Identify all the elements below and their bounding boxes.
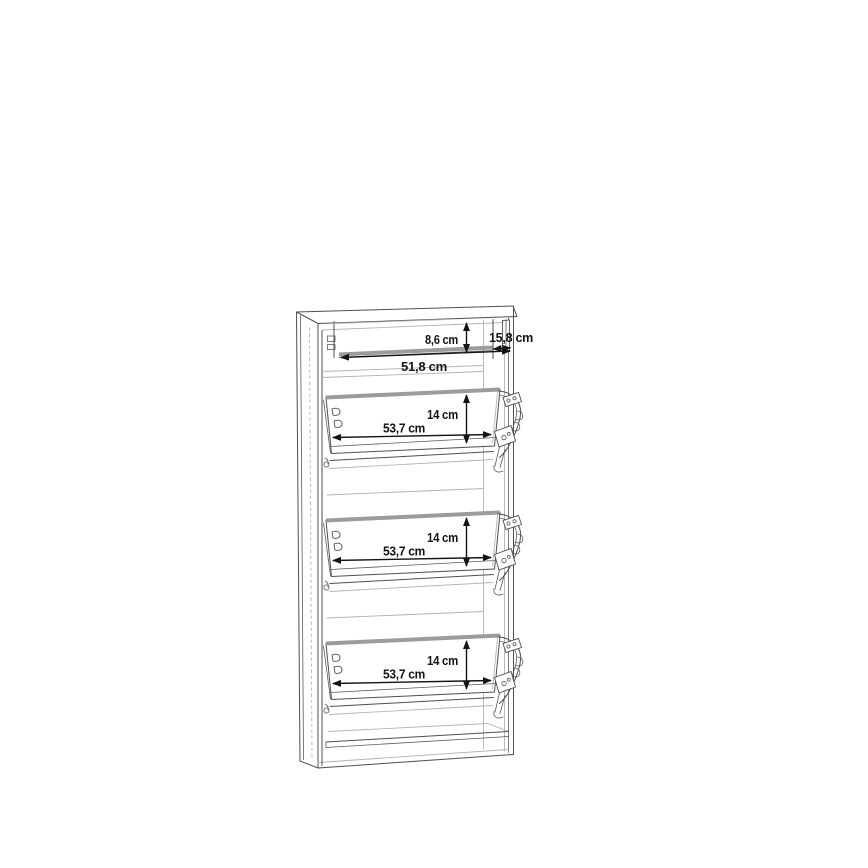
drawer-depth-label: 15,8 cm [489, 330, 533, 345]
product-dimension-diagram: 8,6 cm 15,8 cm 51,8 cm 14 cm 53,7 cm 14 … [0, 0, 868, 868]
drawer-height-label: 8,6 cm [425, 332, 458, 347]
flap3-width-label: 53,7 cm [383, 667, 425, 682]
flap2-height-label: 14 cm [427, 530, 458, 545]
drawer-width-label: 51,8 cm [401, 359, 447, 374]
flap3-height-label: 14 cm [427, 653, 458, 668]
flap2-width-label: 53,7 cm [383, 544, 425, 559]
flap1-height-label: 14 cm [427, 407, 458, 422]
flap1-width-label: 53,7 cm [383, 421, 425, 436]
dimension-drawer-depth: 15,8 cm [489, 330, 533, 349]
bottom-shelf [326, 724, 509, 748]
